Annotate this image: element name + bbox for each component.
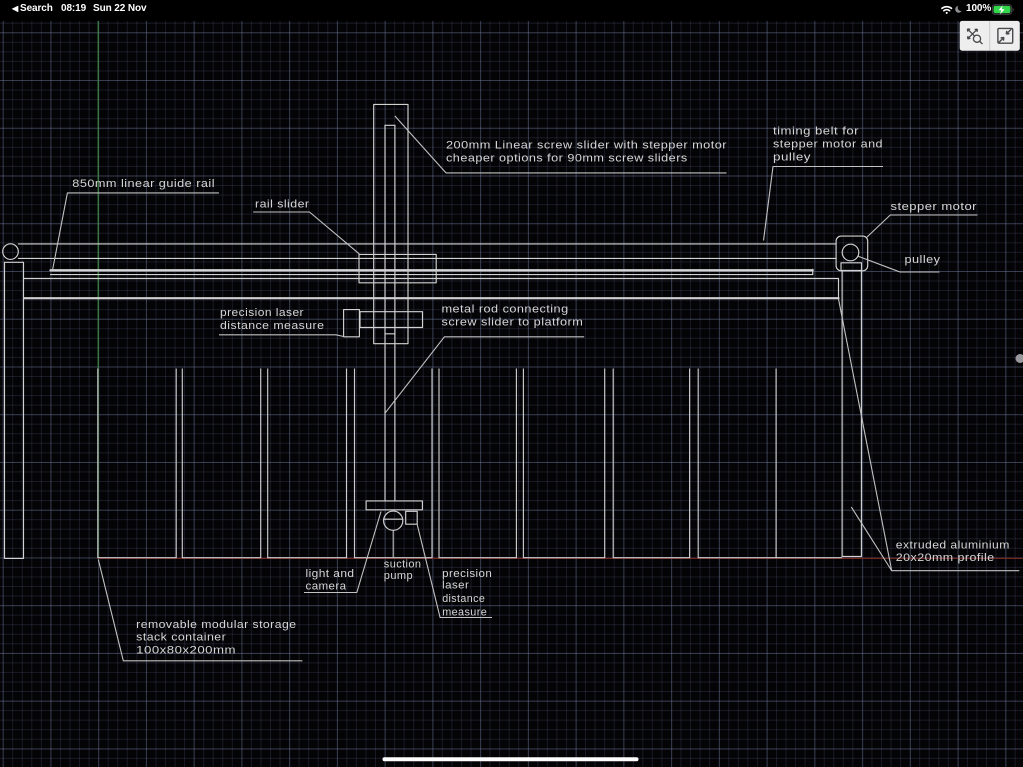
- svg-text:stepper motor: stepper motor: [891, 201, 978, 213]
- svg-text:laser: laser: [442, 580, 469, 592]
- svg-text:cheaper options for 90mm screw: cheaper options for 90mm screw sliders: [446, 153, 688, 165]
- svg-text:stepper motor and: stepper motor and: [773, 139, 883, 151]
- svg-text:screw slider to platform: screw slider to platform: [442, 317, 584, 329]
- svg-text:distance: distance: [442, 593, 485, 605]
- svg-text:timing belt for: timing belt for: [773, 126, 859, 138]
- svg-text:precision laser: precision laser: [220, 307, 304, 319]
- svg-text:stack container: stack container: [136, 632, 226, 644]
- svg-text:850mm linear guide rail: 850mm linear guide rail: [72, 178, 215, 190]
- svg-text:pulley: pulley: [773, 152, 811, 164]
- svg-text:200mm Linear screw slider with: 200mm Linear screw slider with stepper m…: [446, 140, 727, 152]
- svg-text:precision: precision: [442, 568, 492, 580]
- svg-text:measure: measure: [442, 607, 487, 619]
- svg-text:pump: pump: [384, 570, 413, 582]
- svg-text:camera: camera: [306, 581, 347, 593]
- svg-text:metal rod connecting: metal rod connecting: [442, 304, 569, 316]
- svg-text:suction: suction: [384, 559, 422, 571]
- svg-text:light and: light and: [306, 568, 355, 580]
- svg-text:rail slider: rail slider: [255, 199, 310, 211]
- svg-text:extruded aluminium: extruded aluminium: [896, 540, 1010, 552]
- svg-text:pulley: pulley: [905, 254, 941, 266]
- svg-text:removable modular storage: removable modular storage: [136, 619, 296, 631]
- svg-text:100x80x200mm: 100x80x200mm: [136, 644, 236, 656]
- svg-text:20x20mm profile: 20x20mm profile: [896, 552, 995, 564]
- svg-text:distance measure: distance measure: [220, 320, 324, 332]
